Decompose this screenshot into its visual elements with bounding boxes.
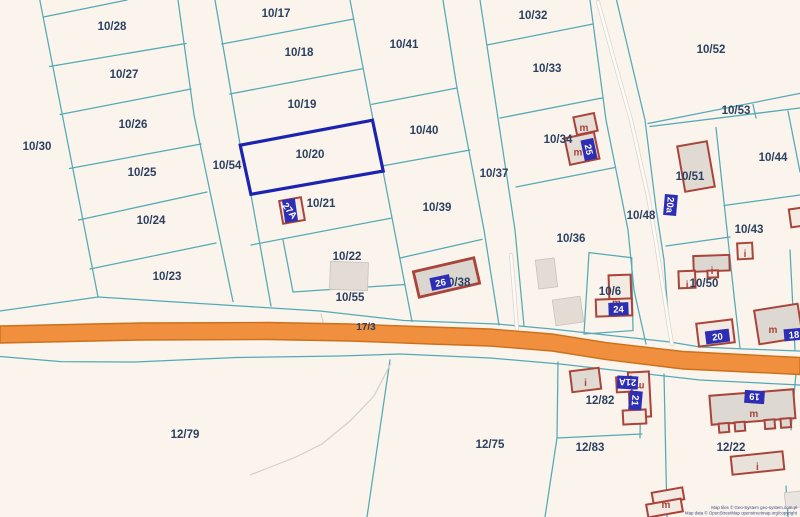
- svg-text:Map tiles © Geo-System geo-sys: Map tiles © Geo-System geo-system.com.pl: [711, 505, 797, 510]
- svg-text:m: m: [580, 123, 589, 134]
- svg-text:10/41: 10/41: [390, 39, 419, 51]
- svg-text:10/25: 10/25: [128, 167, 157, 179]
- svg-text:19: 19: [749, 390, 760, 402]
- svg-text:10/30: 10/30: [23, 141, 52, 153]
- svg-text:m: m: [574, 148, 583, 159]
- svg-text:10/37: 10/37: [480, 168, 509, 180]
- svg-text:10/44: 10/44: [759, 152, 788, 164]
- svg-text:10/53: 10/53: [722, 105, 751, 117]
- svg-text:10/36: 10/36: [557, 233, 586, 245]
- svg-text:m: m: [769, 325, 778, 336]
- svg-text:20: 20: [712, 331, 724, 343]
- svg-text:10/33: 10/33: [533, 63, 562, 75]
- svg-text:12/82: 12/82: [586, 395, 615, 407]
- svg-text:10/28: 10/28: [98, 21, 127, 33]
- svg-text:20a: 20a: [663, 197, 675, 214]
- svg-text:10/18: 10/18: [285, 47, 314, 59]
- svg-text:10/19: 10/19: [288, 99, 317, 111]
- svg-text:i: i: [744, 249, 747, 260]
- svg-text:10/34: 10/34: [544, 134, 573, 146]
- svg-text:10/55: 10/55: [336, 292, 365, 304]
- svg-text:i: i: [711, 266, 714, 277]
- svg-text:10/39: 10/39: [423, 202, 452, 214]
- svg-text:10/40: 10/40: [410, 125, 439, 137]
- svg-text:10/27: 10/27: [110, 69, 139, 81]
- svg-text:10/23: 10/23: [153, 271, 182, 283]
- svg-text:i: i: [686, 280, 689, 291]
- svg-text:12/75: 12/75: [476, 439, 505, 451]
- svg-text:10/6: 10/6: [599, 286, 621, 298]
- svg-text:12/83: 12/83: [576, 442, 605, 454]
- svg-text:10/21: 10/21: [307, 198, 336, 210]
- svg-text:26: 26: [434, 277, 447, 290]
- svg-text:10/43: 10/43: [735, 224, 764, 236]
- svg-text:Map data © OpenStreetMap opens: Map data © OpenStreetMap openstreetmap.o…: [685, 511, 798, 516]
- svg-text:10/22: 10/22: [333, 251, 362, 263]
- svg-text:m: m: [749, 409, 758, 420]
- svg-text:17/3: 17/3: [356, 322, 376, 333]
- svg-text:24: 24: [613, 304, 625, 315]
- svg-text:21A: 21A: [618, 376, 636, 388]
- svg-text:10/32: 10/32: [519, 10, 548, 22]
- svg-text:10/48: 10/48: [627, 210, 656, 222]
- svg-text:i: i: [756, 462, 759, 473]
- svg-text:12/22: 12/22: [717, 442, 746, 454]
- svg-text:18: 18: [788, 330, 799, 342]
- svg-text:10/17: 10/17: [262, 8, 291, 20]
- svg-text:10/24: 10/24: [137, 215, 166, 227]
- svg-text:10/52: 10/52: [697, 44, 726, 56]
- svg-text:12/79: 12/79: [171, 429, 200, 441]
- svg-text:m: m: [662, 500, 671, 511]
- svg-text:10/26: 10/26: [119, 119, 148, 131]
- svg-text:10/51: 10/51: [676, 171, 705, 183]
- svg-text:10/50: 10/50: [690, 278, 719, 290]
- svg-text:10/54: 10/54: [213, 160, 242, 172]
- svg-text:10/20: 10/20: [296, 149, 325, 161]
- svg-text:21: 21: [629, 395, 641, 407]
- svg-text:i: i: [584, 378, 587, 389]
